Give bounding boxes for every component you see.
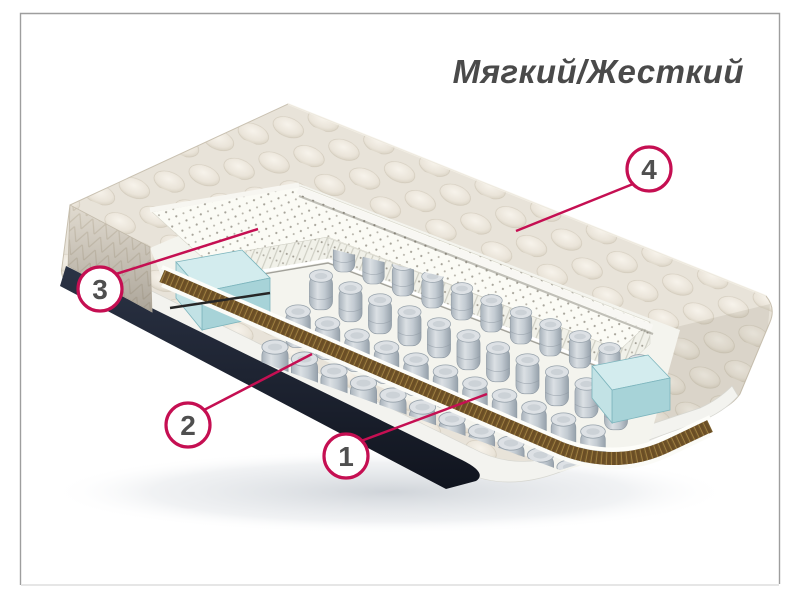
spring-coil	[451, 283, 473, 320]
spring-coil	[481, 295, 503, 332]
spring-coil	[516, 354, 539, 394]
callout-number-1: 1	[338, 441, 354, 472]
spring-coil	[339, 282, 362, 322]
spring-coil	[427, 318, 450, 358]
foam-frame-block-right	[592, 355, 670, 423]
spring-coil	[422, 271, 444, 308]
callout-number-2: 2	[180, 410, 196, 441]
spring-coil	[569, 331, 591, 368]
callout-number-4: 4	[641, 154, 657, 185]
page-title: Мягкий/Жесткий	[453, 53, 744, 91]
spring-coil	[309, 270, 332, 310]
callout-number-3: 3	[92, 274, 108, 305]
spring-coil	[486, 342, 509, 382]
screenshot-root: 1 2 3 4 Мягкий/Жесткий	[0, 0, 800, 600]
spring-coil	[398, 306, 421, 346]
spring-coil	[540, 319, 562, 356]
spring-coil	[368, 294, 391, 334]
spring-coil	[545, 366, 568, 406]
spring-coil	[457, 330, 480, 370]
spring-coil	[510, 307, 532, 344]
